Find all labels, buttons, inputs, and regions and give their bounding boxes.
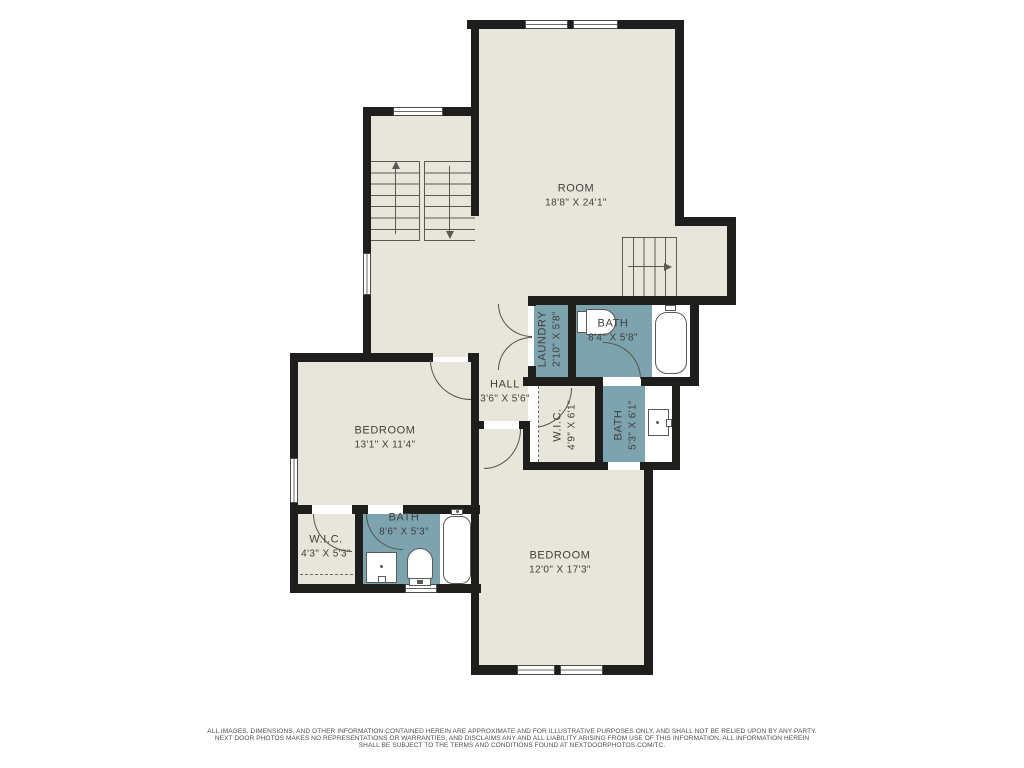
bathtub-upper-faucet-icon	[665, 305, 676, 311]
label-laundry: LAUNDRY 2'10" X 5'8"	[536, 311, 565, 368]
floor-plan: ROOM 18'8" X 24'1" LAUNDRY 2'10" X 5'8" …	[0, 0, 1024, 768]
bedroom-bottom-dims: 12'0" X 17'3"	[529, 564, 591, 578]
stairs-down-arrow-icon	[446, 231, 454, 239]
closet-shelf-wic-middle	[530, 386, 539, 462]
bath-lower-name: BATH	[379, 511, 429, 526]
room-dims: 18'8" X 24'1"	[545, 197, 607, 211]
bathtub-upper-icon	[655, 312, 687, 374]
sink-middle-faucet-dot	[656, 421, 659, 424]
window-landing-left	[363, 253, 371, 295]
wic-lower-name: W.I.C.	[301, 533, 351, 548]
wall-main-room-right	[675, 20, 684, 226]
label-bath-middle: BATH 5'3" X 6'1"	[612, 400, 641, 450]
room-name: ROOM	[545, 182, 607, 197]
window-bedroom-bottom-2	[560, 665, 603, 675]
wall-bath-middle-bottom-a	[523, 462, 608, 470]
wall-lower-outer-bottom	[290, 584, 481, 593]
laundry-name: LAUNDRY	[536, 311, 551, 368]
wall-mid-horizontal	[528, 296, 736, 305]
bath-lower-dims: 8'6" X 5'3"	[379, 526, 429, 540]
wall-outer-left-upper	[363, 107, 371, 357]
bedroom-left-dims: 13'1" X 11'4"	[354, 439, 415, 453]
wall-tub-area-right	[690, 296, 699, 386]
toilet-bowl-lower-icon	[407, 548, 433, 580]
hall-dims: 3'6" X 5'6"	[480, 393, 530, 407]
label-bath-lower: BATH 8'6" X 5'3"	[379, 511, 429, 540]
bath-middle-name: BATH	[612, 400, 627, 450]
wall-wic-bath-middle-divider	[595, 377, 603, 470]
wall-lower-section-top-b	[352, 505, 368, 514]
closet-rod-wic-lower	[300, 574, 353, 575]
disclaimer: ALL IMAGES, DIMENSIONS, AND OTHER INFORM…	[0, 728, 1024, 749]
disclaimer-line-3: SHALL BE SUBJECT TO THE TERMS AND CONDIT…	[0, 742, 1024, 749]
wall-laundry-bath-divider	[568, 296, 576, 380]
bedroom-bottom-name: BEDROOM	[529, 549, 591, 564]
wall-bedroom-bottom-right	[644, 462, 653, 675]
label-bedroom-left: BEDROOM 13'1" X 11'4"	[354, 424, 415, 453]
laundry-dims: 2'10" X 5'8"	[551, 311, 565, 368]
stairs-up-arrow-shaft	[395, 168, 396, 234]
bedroom-left-name: BEDROOM	[354, 424, 415, 439]
label-wic-middle: W.I.C. 4'9" X 6'1"	[551, 400, 580, 450]
stairs-up-arrow-icon	[392, 161, 400, 169]
stairs-down-arrow-shaft	[449, 166, 450, 232]
label-hall: HALL 3'6" X 5'6"	[480, 378, 530, 407]
disclaimer-line-1: ALL IMAGES, DIMENSIONS, AND OTHER INFORM…	[0, 728, 1024, 735]
label-bath-upper: BATH 8'4" X 5'8"	[588, 317, 638, 346]
window-main-room-top-2	[573, 20, 618, 29]
wall-lower-section-top-a	[290, 505, 312, 514]
stairs-right-arrow-shaft	[628, 266, 666, 267]
wall-hall-bottom-a	[478, 421, 484, 429]
window-main-room-top-1	[525, 20, 568, 29]
sink-lower-pedestal-icon	[378, 576, 386, 583]
bathtub-lower-icon	[443, 516, 471, 584]
wall-nook-right	[727, 217, 736, 305]
sink-lower-faucet-dot	[380, 565, 383, 568]
stairs-main-right-flight	[425, 161, 475, 241]
stairs-main-center-rail	[419, 161, 425, 241]
wall-bath-upper-bottom-b	[641, 377, 699, 386]
wic-middle-dims: 4'9" X 6'1"	[566, 400, 580, 450]
toilet-lower-button-icon	[417, 580, 423, 584]
disclaimer-line-2: NEXT DOOR PHOTOS MAKES NO REPRESENTATION…	[0, 735, 1024, 742]
window-bedroom-bottom-1	[517, 665, 555, 675]
bath-upper-name: BATH	[588, 317, 638, 332]
window-stair-top	[393, 107, 443, 116]
wic-middle-name: W.I.C.	[551, 400, 566, 450]
label-room: ROOM 18'8" X 24'1"	[545, 182, 607, 211]
bath-upper-dims: 8'4" X 5'8"	[588, 332, 638, 346]
wall-center-vertical	[471, 353, 479, 675]
bathtub-lower-faucet-dot	[456, 510, 459, 513]
window-bedroom-left	[290, 458, 298, 503]
hall-name: HALL	[480, 378, 530, 393]
label-wic-lower: W.I.C. 4'3" X 5'3"	[301, 533, 351, 562]
wic-lower-dims: 4'3" X 5'3"	[301, 548, 351, 562]
floor-stair-nook	[675, 226, 727, 296]
wall-main-room-left	[471, 20, 479, 216]
stairs-right-arrow-icon	[664, 263, 672, 271]
wall-bath-middle-right	[672, 377, 680, 470]
wall-bedroom-left-top-a	[290, 353, 433, 362]
bath-middle-dims: 5'3" X 6'1"	[627, 400, 641, 450]
wall-bath-upper-bottom-a	[523, 377, 602, 386]
sink-middle-handle-icon	[666, 419, 672, 427]
label-bedroom-bottom: BEDROOM 12'0" X 17'3"	[529, 549, 591, 578]
wall-wic-bath-lower-divider	[355, 514, 363, 584]
